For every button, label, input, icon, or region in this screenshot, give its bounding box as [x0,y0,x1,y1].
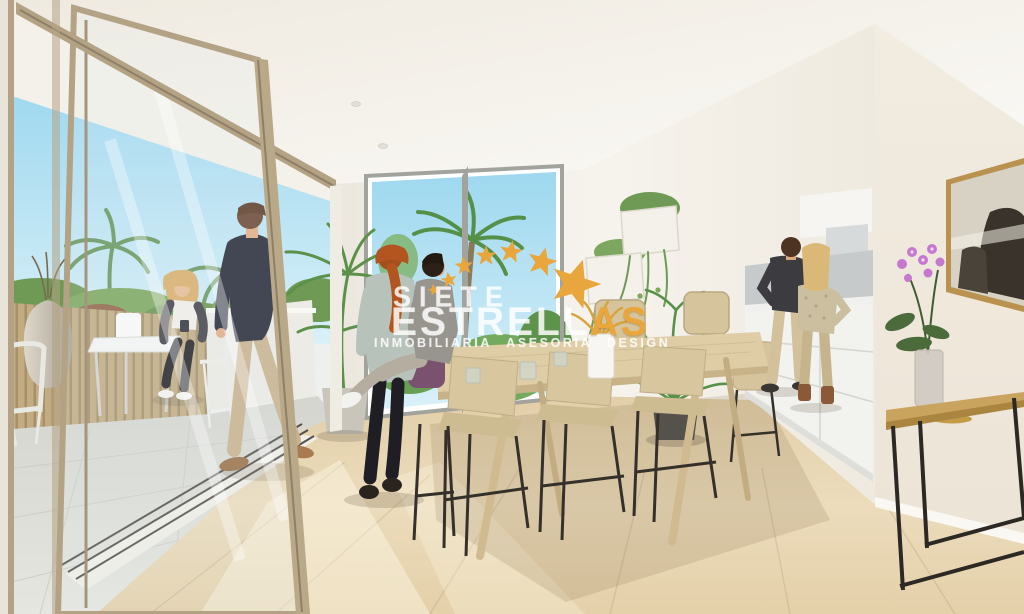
door-jamb [330,185,342,432]
apartment-render-photo: SIETE ESTRELLAS INMOBILIARIA ASESORIA DE… [0,0,1024,614]
framed-artwork [946,158,1024,312]
interior-scene [0,0,1024,614]
frosted-vase [915,350,943,406]
brown-boot [798,384,811,401]
patterned-top [798,284,838,334]
ponytail [392,268,397,328]
